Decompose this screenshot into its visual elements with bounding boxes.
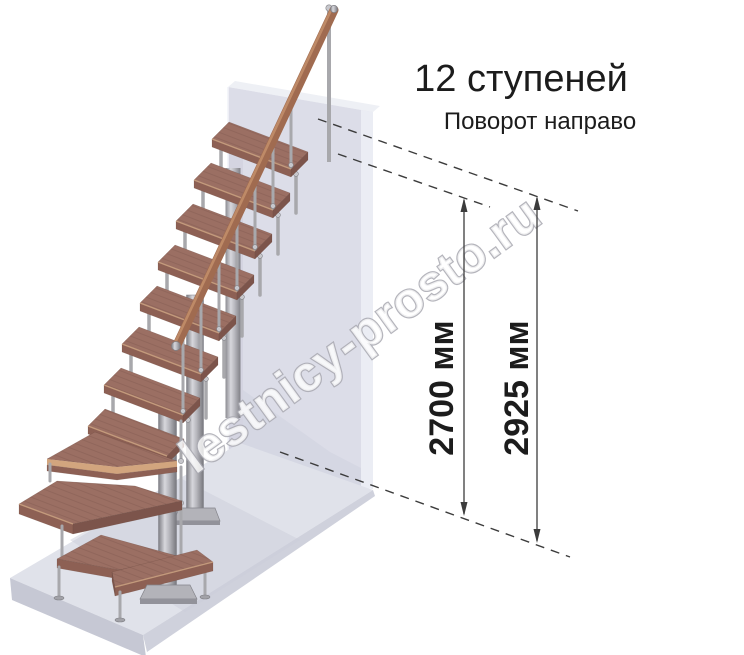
baluster-knob bbox=[181, 409, 186, 414]
column-lower-base-front bbox=[140, 599, 197, 604]
baluster-knob bbox=[289, 163, 294, 168]
column-lower-base-plate bbox=[140, 585, 197, 599]
page-title: 12 ступеней bbox=[414, 58, 628, 100]
baluster-knob bbox=[217, 327, 222, 332]
arrowhead-up bbox=[461, 198, 468, 212]
diagram-canvas: lestnicy-prosto.ru 2700 мм 2925 мм 12 ст… bbox=[0, 0, 744, 655]
arrowhead-down bbox=[534, 529, 541, 543]
handrail-lower-cap bbox=[172, 342, 181, 351]
dimension-label-2925: 2925 мм bbox=[498, 320, 536, 455]
baluster-knob bbox=[271, 204, 276, 209]
post-foot bbox=[54, 596, 64, 600]
handrail-top-cap bbox=[330, 5, 337, 12]
arrowhead-down bbox=[461, 502, 468, 516]
baluster-knob bbox=[199, 368, 204, 373]
post-foot bbox=[115, 618, 125, 622]
arrowhead-up bbox=[534, 196, 541, 210]
baluster-knob bbox=[235, 286, 240, 291]
caption: 12 ступеней Поворот направо bbox=[414, 58, 636, 135]
dimension-label-2700: 2700 мм bbox=[423, 320, 461, 455]
baluster-knob bbox=[253, 245, 258, 250]
post-foot bbox=[200, 595, 210, 599]
staircase-illustration: lestnicy-prosto.ru 2700 мм 2925 мм 12 ст… bbox=[0, 0, 744, 655]
page-subtitle: Поворот направо bbox=[444, 108, 636, 135]
